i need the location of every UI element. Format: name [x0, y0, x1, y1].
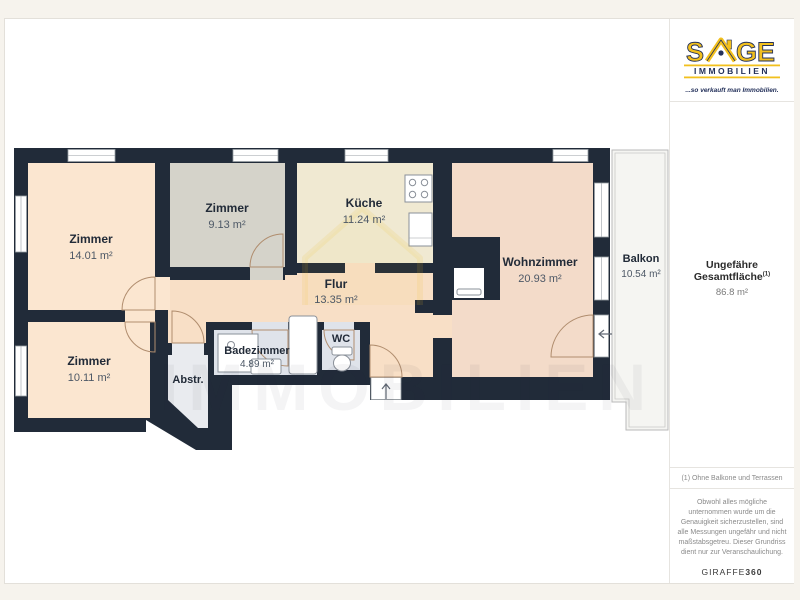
label-flur: Flur — [325, 277, 348, 291]
area-flur: 13.35 m² — [314, 294, 358, 306]
area-balkon: 10.54 m² — [621, 269, 661, 280]
label-zimmer-10: Zimmer — [67, 354, 111, 368]
brand-letter-s: S — [686, 37, 704, 67]
area-zimmer-14: 14.01 m² — [69, 250, 113, 262]
sage-logo: S GE IMMOBILIEN — [680, 31, 784, 81]
label-abstellraum: Abstr. — [172, 374, 203, 386]
brand-logo-section: S GE IMMOBILIEN ...so verkauft man Immob… — [670, 19, 794, 102]
stove-icon — [405, 175, 432, 202]
area-zimmer-10: 10.11 m² — [68, 372, 111, 384]
watermark-text: IMMOBILIEN — [160, 350, 656, 424]
label-wohnzimmer: Wohnzimmer — [502, 255, 577, 269]
house-roof-icon — [707, 40, 735, 61]
total-area-footnote-marker: (1) — [763, 272, 770, 278]
room-zimmer-9 — [170, 163, 285, 267]
label-zimmer-14: Zimmer — [69, 232, 113, 246]
total-area-block: Ungefähre Gesamtfläche(1) 86.8 m² — [670, 259, 794, 298]
brand-sub: IMMOBILIEN — [694, 66, 770, 76]
giraffe360-360: 360 — [745, 567, 762, 577]
total-area-value: 86.8 m² — [670, 287, 794, 298]
brand-letters-ge: GE — [736, 37, 775, 67]
giraffe360-name: GIRAFFE — [701, 567, 745, 577]
kitchen-sink-icon — [409, 213, 432, 246]
label-balkon: Balkon — [623, 253, 660, 265]
label-zimmer-9: Zimmer — [205, 201, 249, 215]
brand-tagline: ...so verkauft man Immobilien. — [670, 87, 794, 94]
disclaimer-section: Obwohl alles mögliche unternommen wurde … — [670, 488, 794, 583]
area-kueche: 11.24 m² — [343, 214, 386, 226]
label-wc: WC — [332, 333, 350, 345]
label-kueche: Küche — [346, 196, 383, 210]
disclaimer-text: Obwohl alles mögliche unternommen wurde … — [677, 498, 787, 558]
total-area-label-text: Ungefähre Gesamtfläche — [694, 259, 763, 283]
wall-block-niche — [450, 237, 500, 300]
label-badezimmer: Badezimmer — [224, 345, 290, 357]
area-wohnzimmer: 20.93 m² — [518, 273, 562, 285]
footnote: (1) Ohne Balkone und Terrassen — [670, 467, 794, 488]
area-zimmer-9: 9.13 m² — [208, 219, 246, 231]
giraffe360-logo: GIRAFFE360 — [677, 567, 787, 577]
room-zimmer-10 — [28, 322, 150, 418]
area-badezimmer: 4.89 m² — [240, 359, 275, 370]
sidebar: S GE IMMOBILIEN ...so verkauft man Immob… — [669, 19, 794, 583]
total-area-label: Ungefähre Gesamtfläche(1) — [670, 259, 794, 283]
